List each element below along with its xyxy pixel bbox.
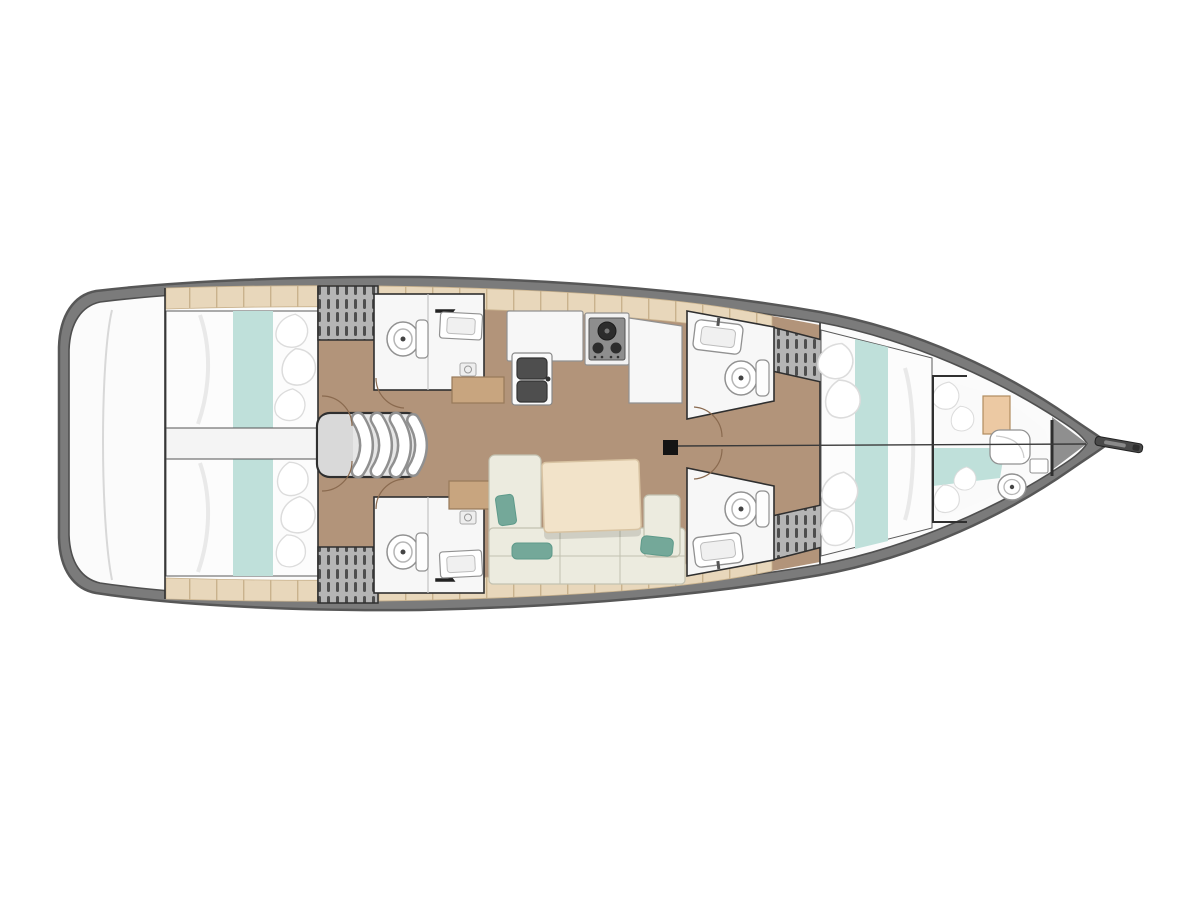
bed-runner [855,339,888,549]
vanity-sink [990,430,1030,464]
toilet-drain [401,550,406,555]
toilet-drain [1010,485,1014,489]
burner-large-cap [605,329,610,334]
sink [439,312,482,340]
aft-cabin-port [166,311,318,428]
burner-small-2 [611,343,622,354]
bowsprit [1094,436,1143,453]
sofa-cushion-3 [640,535,674,556]
sofa-cushion-1 [495,494,517,526]
toilet-drain [401,337,406,342]
sink-basin-2 [517,381,547,402]
sink-basin-1 [517,358,547,379]
toilet-cistern [756,360,769,396]
burner-small-1 [593,343,604,354]
wardrobe-aft-port [318,286,378,340]
bow-shelf [1030,459,1048,473]
chart-step-port [452,377,504,403]
floorplan-svg [0,0,1200,900]
toilet-cistern [756,491,769,527]
forward-cabin [814,330,932,556]
head-aft-port [374,294,484,390]
toilet-drain [739,507,744,512]
toilet-drain [739,376,744,381]
sofa-cushion-2 [512,543,552,559]
aft-passage [166,428,318,459]
shower-drain [460,511,476,524]
yacht-floorplan-canvas [0,0,1200,900]
head-aft-starboard [374,497,484,593]
aft-cabin-starboard [166,459,318,576]
toilet-cistern [416,533,428,571]
counter-right [629,318,682,403]
head-forward-port [687,311,774,419]
companionway-stairs [317,413,421,477]
shower-drain [460,363,476,376]
stairs-landing [319,415,353,475]
mast [663,440,678,455]
bed-runner [233,311,273,428]
salon-table [542,459,641,532]
toilet-cistern [416,320,428,358]
sink [439,550,482,578]
bow-cabinet [983,396,1010,434]
bed-runner [233,459,273,576]
head-forward-starboard [687,468,774,576]
wardrobe-aft-starboard [318,547,378,603]
sink-faucet [546,377,551,382]
